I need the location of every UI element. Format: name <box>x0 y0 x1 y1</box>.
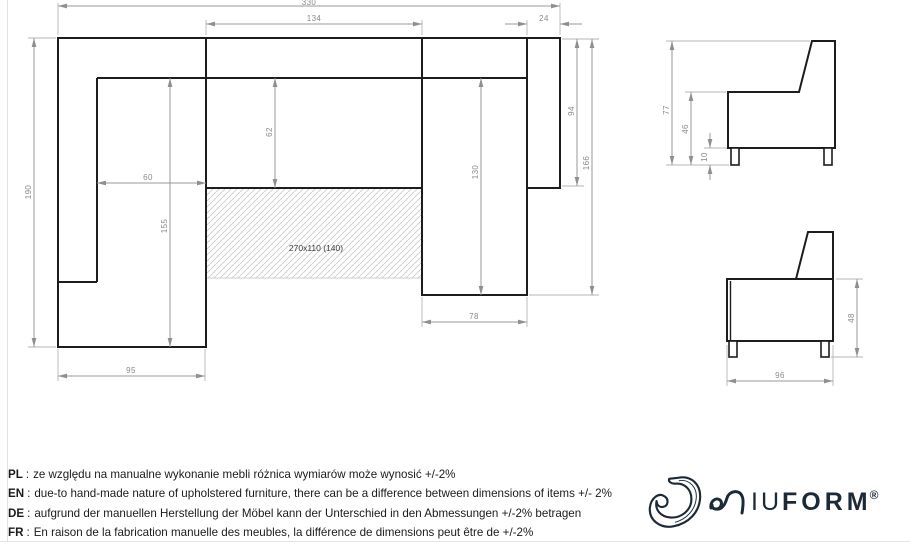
dim-back-leg-height: 10 <box>700 133 727 180</box>
note-en: EN:due-to hand-made nature of upholstere… <box>8 484 653 503</box>
dim-total-depth: 190 <box>24 38 56 347</box>
note-fr-lang: FR <box>8 526 23 539</box>
note-en-separator: : <box>27 487 30 500</box>
note-fr-text: En raison de la fabrication manuelle des… <box>34 526 534 539</box>
note-pl-lang: PL <box>8 468 23 481</box>
dim-label-seat-width: 134 <box>307 14 322 23</box>
dim-label-total-width: 330 <box>302 0 317 7</box>
bed-area-label: 270x110 (140) <box>289 243 343 253</box>
note-de: DE:aufgrund der manuellen Herstellung de… <box>8 504 653 523</box>
dim-label-left-seat-width: 60 <box>143 173 153 182</box>
dim-left-side-width: 95 <box>58 349 205 381</box>
dim-label-corner-side: 24 <box>539 14 549 23</box>
side-view-arm: 48 96 <box>727 232 863 386</box>
brand-logo: IUFORM® <box>645 466 905 538</box>
note-de-text: aufgrund der manuellen Herstellung der M… <box>34 507 581 520</box>
dim-label-left-side-width: 95 <box>126 366 136 375</box>
dim-label-total-depth: 190 <box>24 185 33 200</box>
note-pl: PL:ze względu na manualne wykonanie mebl… <box>8 465 653 484</box>
note-pl-separator: : <box>26 468 29 481</box>
dim-label-right-side-upper: 94 <box>567 106 576 116</box>
technical-drawing: 270x110 (140) 330 134 24 <box>0 0 910 455</box>
tolerance-notes: PL:ze względu na manualne wykonanie mebl… <box>8 465 653 543</box>
dim-label-back-leg-height: 10 <box>700 152 709 162</box>
dim-label-left-side-length: 155 <box>160 219 169 234</box>
back-profile-leg-right <box>824 148 832 165</box>
dim-corner-side: 24 <box>505 14 582 35</box>
dim-label-arm-depth: 96 <box>775 371 785 380</box>
dim-seat-width: 134 <box>206 14 422 35</box>
dim-label-right-side-length: 166 <box>582 156 591 171</box>
m-squiggle-icon <box>707 486 751 518</box>
note-fr-separator: : <box>26 526 29 539</box>
brand-letters-thin: IU <box>751 488 782 517</box>
back-profile-leg-left <box>731 148 739 165</box>
arm-profile-backrest <box>796 232 833 279</box>
note-de-lang: DE <box>8 507 24 520</box>
dim-label-back-total-height: 77 <box>662 105 671 115</box>
dim-label-back-seat-height: 46 <box>681 124 690 134</box>
note-pl-text: ze względu na manualne wykonanie mebli r… <box>33 468 455 481</box>
side-view-back: 77 46 10 <box>662 41 835 180</box>
dim-label-right-seat-width: 78 <box>469 312 479 321</box>
brand-letters-bold: FORM <box>782 488 872 517</box>
note-de-separator: : <box>27 507 30 520</box>
dim-label-right-seat-length: 130 <box>471 165 480 180</box>
registered-mark: ® <box>870 488 879 502</box>
dim-label-arm-side-height: 48 <box>847 313 856 323</box>
page-left-border <box>7 0 8 542</box>
dim-arm-depth: 96 <box>727 345 833 386</box>
top-view: 270x110 (140) 330 134 24 <box>24 0 599 381</box>
note-en-lang: EN <box>8 487 24 500</box>
dim-right-seat-width: 78 <box>422 297 527 327</box>
dim-arm-side-height: 48 <box>831 279 863 357</box>
note-en-text: due-to hand-made nature of upholstered f… <box>34 487 612 500</box>
arm-profile-leg-left <box>729 341 737 357</box>
bed-area <box>206 188 422 278</box>
dim-label-seat-depth: 62 <box>265 127 274 137</box>
dim-right-side-upper: 94 <box>562 39 599 186</box>
brand-wordmark: IUFORM® <box>707 486 880 518</box>
arm-profile-body <box>727 279 833 341</box>
bean-icon <box>645 472 703 532</box>
back-profile-body <box>728 41 835 148</box>
arm-profile-leg-right <box>821 341 829 357</box>
note-fr: FR:En raison de la fabrication manuelle … <box>8 523 653 542</box>
